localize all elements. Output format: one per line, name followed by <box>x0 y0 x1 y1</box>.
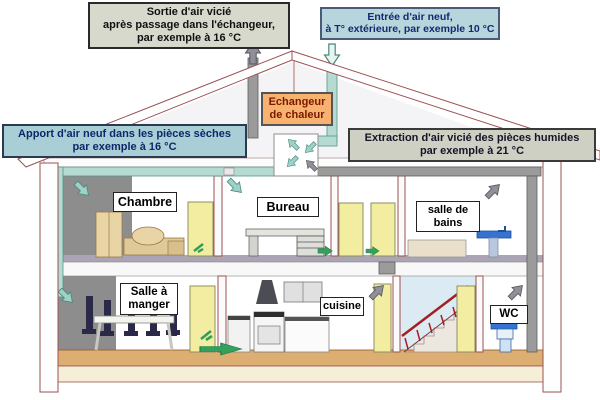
base-slab <box>40 366 561 382</box>
heat-exchanger-unit <box>274 134 318 176</box>
callout-line: après passage dans l'échangeur, <box>93 19 285 32</box>
duct-connector <box>224 168 234 175</box>
callout-entree-air-neuf: Entrée d'air neuf, à T° extérieure, par … <box>320 7 500 40</box>
extract-duct-horizontal <box>317 167 541 176</box>
dining-table <box>94 316 174 323</box>
room-label-salle-de-bains: salle de bains <box>416 201 480 232</box>
extract-duct-vertical <box>527 176 537 352</box>
desk-leg <box>249 236 258 256</box>
fresh-air-elbow <box>316 136 337 146</box>
callout-line: Entrée d'air neuf, <box>325 11 495 23</box>
chest <box>168 241 184 255</box>
room-label-cuisine: cuisine <box>320 297 364 316</box>
callout-line: Apport d'air neuf dans les pièces sèches <box>7 128 242 141</box>
oven-door <box>258 326 280 344</box>
right-exterior-wall <box>543 155 561 392</box>
heat-exchanger-label: Echangeur de chaleur <box>261 92 333 126</box>
callout-line: à T° extérieure, par exemple 10 °C <box>325 23 495 35</box>
room-label-wc: WC <box>490 305 528 324</box>
door <box>339 203 363 256</box>
room-label-chambre: Chambre <box>113 192 177 212</box>
door <box>457 286 475 352</box>
supply-duct-horizontal <box>58 167 278 176</box>
counter <box>285 317 329 352</box>
door <box>190 286 215 352</box>
callout-line: Echangeur <box>266 96 328 109</box>
sink <box>477 231 511 238</box>
callout-apport-air-neuf: Apport d'air neuf dans les pièces sèches… <box>2 124 247 158</box>
room-label-bureau: Bureau <box>257 197 319 217</box>
ventilation-diagram: Sortie d'air vicié après passage dans l'… <box>0 0 600 400</box>
room-label-salle-a-manger: Salle à manger <box>120 283 178 315</box>
sink-pedestal <box>489 238 498 257</box>
pillow <box>132 227 164 245</box>
callout-line: par exemple à 16 °C <box>7 141 242 154</box>
callout-extraction-air-vicie: Extraction d'air vicié des pièces humide… <box>348 128 596 162</box>
door <box>188 202 213 256</box>
bathtub <box>408 240 466 257</box>
callout-line: Extraction d'air vicié des pièces humide… <box>353 132 591 145</box>
callout-line: par exemple à 21 °C <box>353 145 591 158</box>
kitchen-duct-elbow <box>379 262 395 274</box>
left-exterior-wall <box>40 163 58 392</box>
callout-line: de chaleur <box>266 109 328 122</box>
callout-line: Sortie d'air vicié <box>93 6 285 19</box>
callout-sortie-air-vicie: Sortie d'air vicié après passage dans l'… <box>88 2 290 49</box>
desk-top <box>246 229 324 236</box>
middle-slab <box>58 262 543 276</box>
callout-line: par exemple à 16 °C <box>93 32 285 45</box>
